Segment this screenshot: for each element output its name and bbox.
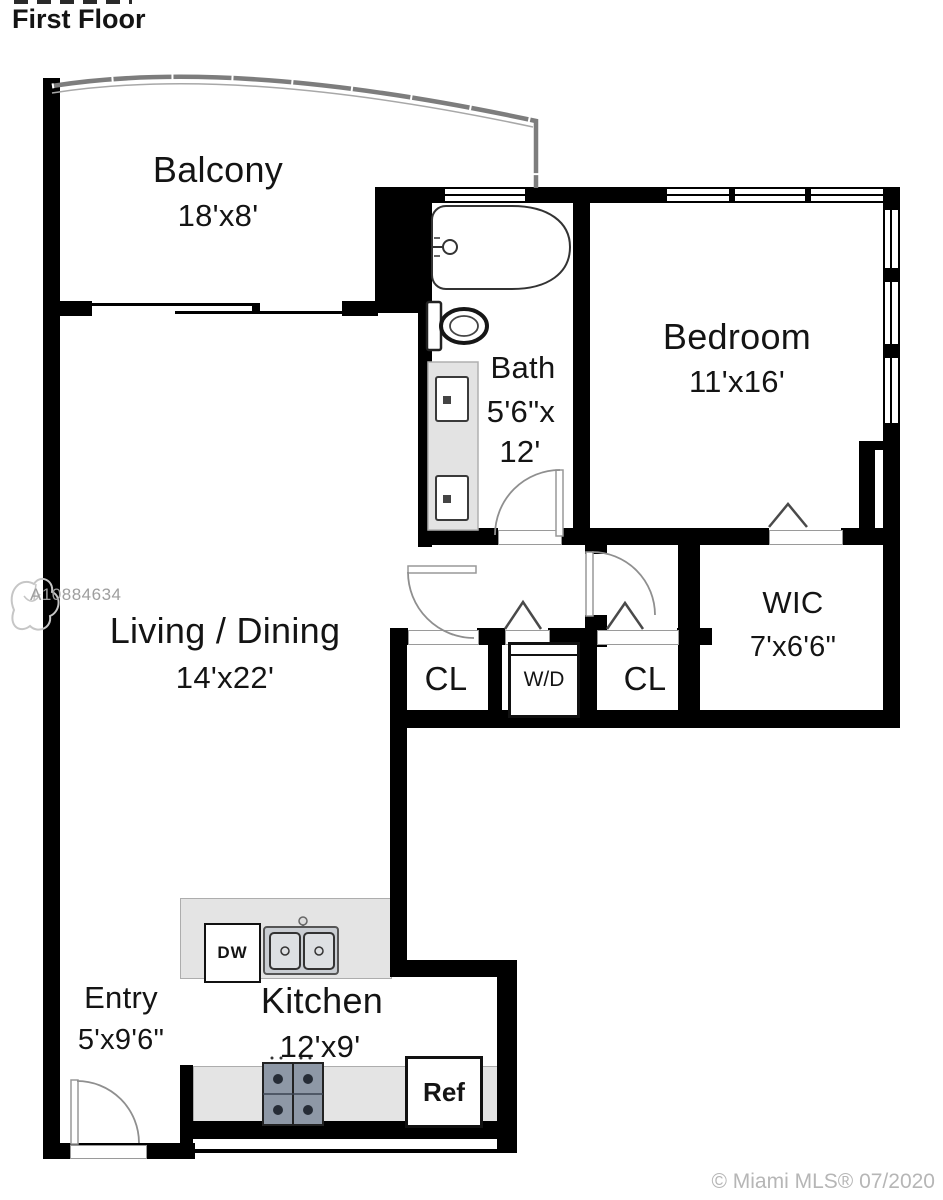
stove-burner [303,1074,313,1084]
stove-burner [303,1105,313,1115]
sink-basin [304,933,334,969]
bath-dims-line2: 12' [499,435,540,469]
bifold-door [607,603,643,629]
entry-dims: 5'x9'6" [78,1025,164,1057]
tub-faucet [443,240,457,254]
closet-right-label: CL [624,661,667,697]
stove-burner [273,1105,283,1115]
stove-burner [273,1074,283,1084]
floor-plan: First Floor [0,0,943,1200]
balcony-label: Balcony [153,150,283,190]
entry-label: Entry [84,981,158,1015]
bedroom-label: Bedroom [663,317,811,357]
mls-id-watermark: A10884634 [30,585,121,605]
kitchen-faucet [299,917,307,925]
closet-door-arc [408,572,474,638]
closet-left-label: CL [425,661,468,697]
balcony-dims: 18'x8' [178,199,259,233]
entry-door-arc [77,1081,139,1143]
living-dining-dims: 14'x22' [176,661,274,695]
bifold-door [505,602,541,629]
washer-dryer-label: W/D [524,668,565,692]
door-leaf [586,552,593,616]
vanity-sink [436,476,468,520]
bifold-door [769,504,807,527]
bath-label: Bath [491,351,556,385]
door-leaf [556,470,563,536]
dishwasher-label: DW [217,943,247,963]
toilet-bowl [441,309,487,343]
door-leaf [71,1080,78,1144]
toilet-tank [427,302,441,350]
wic-dims: 7'x6'6" [750,632,836,664]
copyright-watermark: © Miami MLS® 07/2020 [711,1170,935,1194]
balcony-railing-joints [52,77,536,188]
vanity-sink [436,377,468,421]
refrigerator-label: Ref [423,1077,465,1108]
refrigerator-symbol: Ref [405,1056,483,1128]
balcony-railing [52,77,536,188]
door-leaf [408,566,476,573]
bath-dims-line1: 5'6"x [487,395,555,429]
washer-dryer-symbol: W/D [508,642,580,718]
bedroom-dims: 11'x16' [689,365,785,399]
bath-door-arc [495,470,560,535]
living-dining-label: Living / Dining [110,611,341,651]
page-title: First Floor [12,4,146,35]
sink-basin [270,933,300,969]
vanity-sink-drain [443,396,451,404]
wic-label: WIC [762,586,823,620]
vanity-sink-drain [443,495,451,503]
dishwasher-symbol: DW [204,923,261,983]
kitchen-dims: 12'x9' [280,1030,361,1064]
washer-dryer-lid [511,654,577,656]
kitchen-label: Kitchen [261,981,383,1021]
